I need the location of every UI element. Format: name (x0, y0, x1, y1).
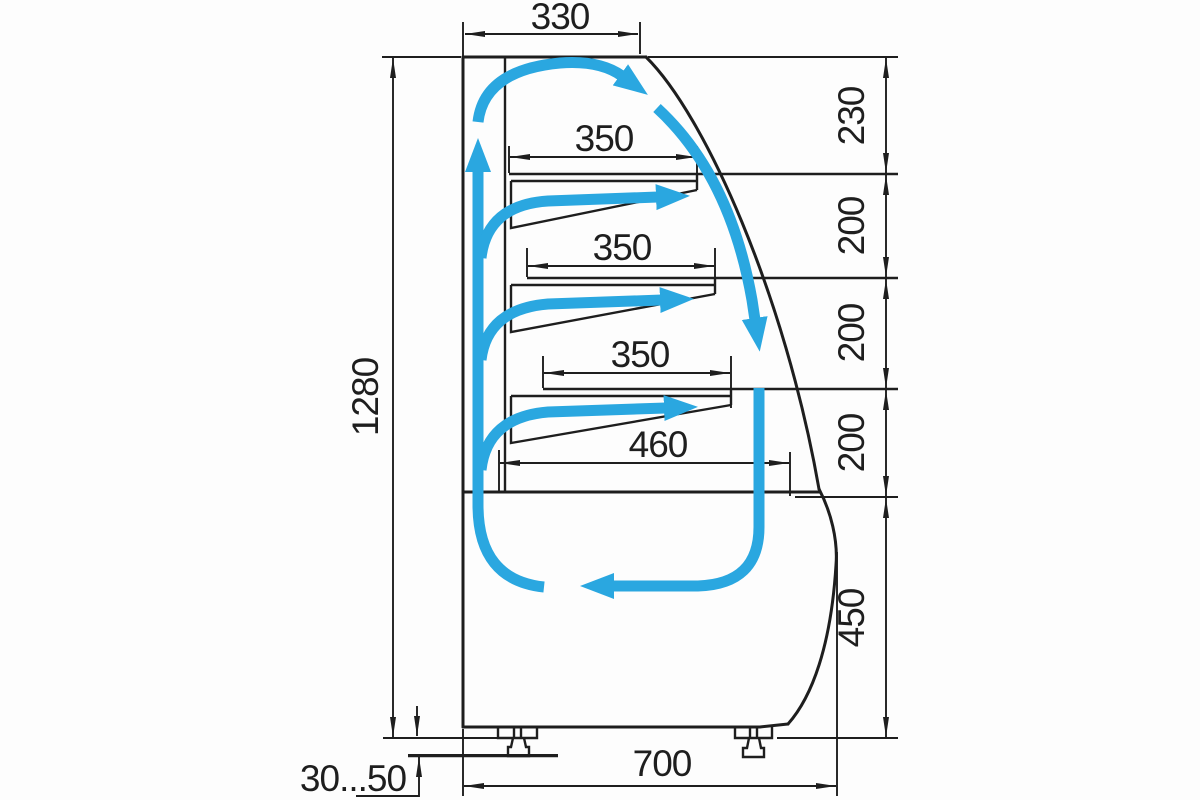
lower-front-panel (788, 489, 836, 724)
dimension-labels: 330 350 350 350 460 1280 230 200 200 200… (300, 0, 872, 799)
dim-label-leg-range: 30...50 (300, 758, 407, 799)
airflow-top-arc-arrow (478, 63, 622, 122)
dim-label-top-width: 330 (531, 0, 590, 37)
dim-label-base-height: 450 (831, 588, 872, 647)
dim-label-section-top: 230 (831, 86, 872, 145)
shelf-3-bracket (511, 396, 731, 443)
dim-label-overall-depth: 700 (633, 743, 692, 784)
display-case-diagram: 330 350 350 350 460 1280 230 200 200 200… (0, 0, 1200, 800)
dim-label-overall-height: 1280 (345, 357, 386, 436)
left-foot (498, 727, 537, 756)
dim-label-section-4: 200 (831, 413, 872, 472)
dim-label-section-2: 200 (831, 196, 872, 255)
technical-drawing-canvas: 330 350 350 350 460 1280 230 200 200 200… (0, 0, 1200, 800)
airflow-glass-downflow-arrow (657, 108, 755, 320)
dim-label-shelf-2-width: 350 (593, 227, 652, 268)
bottom-panel-line (463, 724, 788, 727)
dim-label-base-shelf-width: 460 (629, 424, 688, 465)
right-foot (735, 727, 772, 757)
dim-label-shelf-1-width: 350 (575, 118, 634, 159)
dim-label-shelf-3-width: 350 (611, 334, 670, 375)
airflow-return-arrow (612, 388, 759, 586)
dim-label-section-3: 200 (831, 303, 872, 362)
